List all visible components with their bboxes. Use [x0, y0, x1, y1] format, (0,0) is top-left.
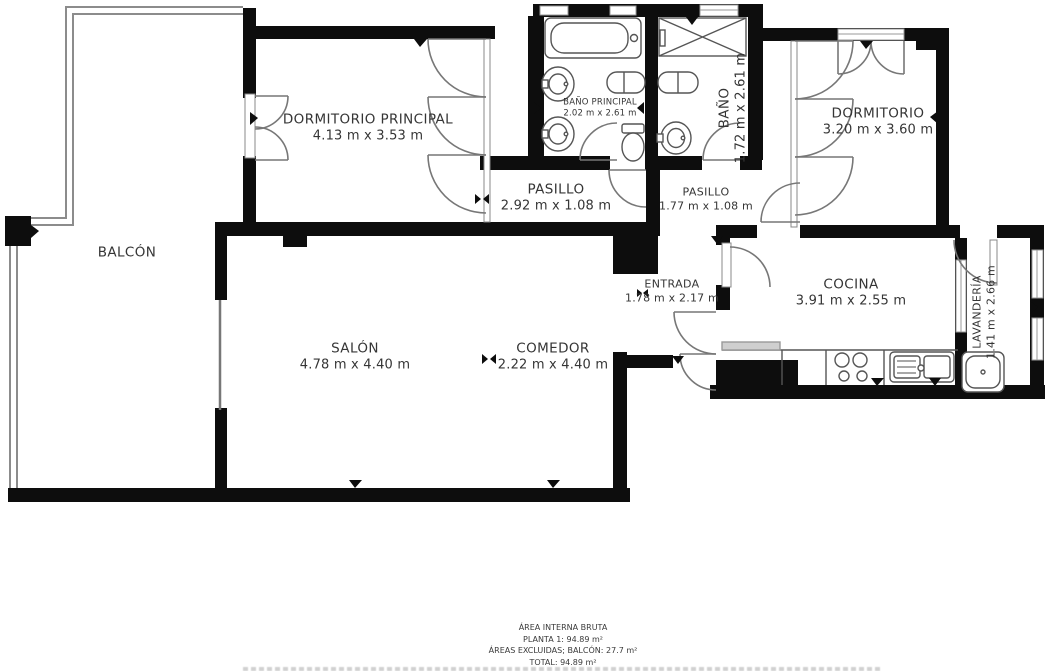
room-label-dormitorio: DORMITORIO 3.20 m x 3.60 m — [823, 105, 933, 138]
sink — [657, 122, 691, 154]
room-label-dormitorio-principal: DORMITORIO PRINCIPAL 4.13 m x 3.53 m — [283, 111, 453, 144]
area-summary-planta: PLANTA 1: 94.89 m² — [489, 634, 638, 646]
room-label-bano-principal: BAÑO PRINCIPAL 2.02 m x 2.61 m — [563, 97, 637, 118]
floorplan-page: BALCÓN DORMITORIO PRINCIPAL 4.13 m x 3.5… — [0, 0, 1064, 671]
room-label-balcon: BALCÓN — [98, 245, 157, 262]
room-label-bano: BAÑO 1.72 m x 2.61 m — [716, 53, 749, 163]
fixtures — [542, 18, 1004, 392]
room-label-cocina: COCINA 3.91 m x 2.55 m — [796, 276, 906, 309]
bathtub — [545, 18, 641, 58]
walls — [5, 4, 1045, 502]
area-summary: ÁREA INTERNA BRUTA PLANTA 1: 94.89 m² ÁR… — [489, 622, 638, 668]
floorplan-drawing — [0, 0, 1064, 671]
room-label-entrada: ENTRADA 1.78 m x 2.17 m — [625, 277, 719, 305]
fine-print-line — [243, 667, 883, 671]
shower — [659, 18, 746, 56]
room-label-pasillo-1: PASILLO 2.92 m x 1.08 m — [501, 181, 611, 214]
stove — [835, 353, 867, 381]
room-label-lavanderia: LAVANDERÍA 1.41 m x 2.66 m — [970, 265, 998, 359]
kitchen-sink — [890, 352, 954, 382]
area-summary-excluded: ÁREAS EXCLUIDAS; BALCÓN: 27.7 m² — [489, 645, 638, 657]
area-summary-title: ÁREA INTERNA BRUTA — [489, 622, 638, 634]
room-label-comedor: COMEDOR 2.22 m x 4.40 m — [498, 340, 608, 373]
room-label-salon: SALÓN 4.78 m x 4.40 m — [300, 340, 410, 373]
room-label-pasillo-2: PASILLO 1.77 m x 1.08 m — [659, 185, 753, 213]
